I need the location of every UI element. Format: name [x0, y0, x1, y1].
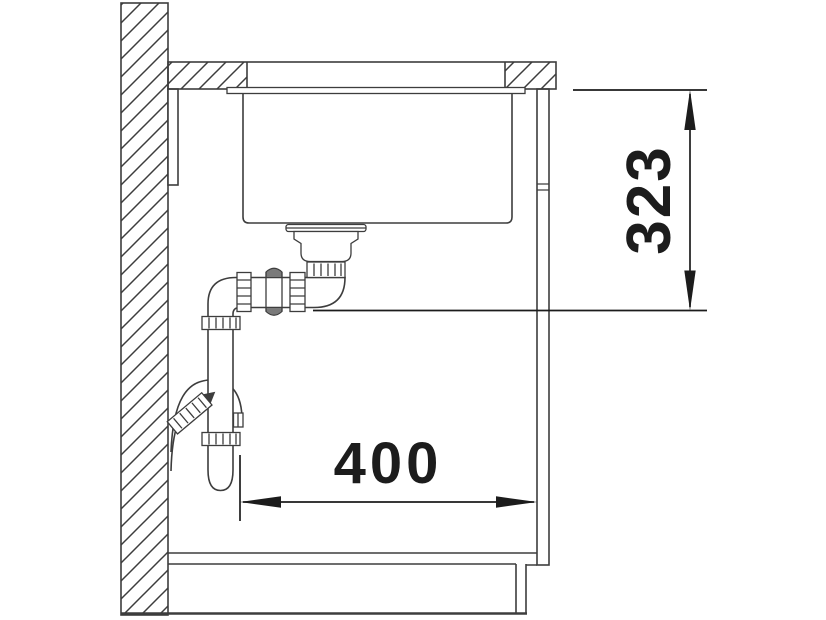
sink-cabinet-section-drawing: 323 400	[0, 0, 826, 620]
pipe-clip	[234, 413, 244, 427]
vertical-pipe-nut-lower	[202, 433, 240, 446]
dim-h-arrow-left	[240, 496, 281, 507]
cabinet-back-rail	[168, 89, 178, 185]
strainer-bowl	[294, 232, 358, 262]
wall-section-hatched	[121, 3, 168, 615]
countertop-hatch-left	[168, 62, 247, 89]
pipe-nut-left	[237, 273, 251, 312]
dimension-vertical-value: 323	[615, 145, 684, 254]
dim-v-arrow-down	[684, 271, 695, 311]
strainer-assembly	[286, 225, 366, 278]
cabinet-side-panel	[537, 89, 549, 565]
dimension-horizontal: 400	[240, 431, 537, 521]
strainer-threaded-ring	[307, 262, 345, 278]
countertop-hatch-right	[505, 62, 556, 89]
drain-pipe-run	[202, 268, 345, 490]
dimension-horizontal-value: 400	[334, 431, 443, 496]
sink-basin	[243, 94, 512, 224]
vertical-pipe-nut-upper	[202, 317, 240, 330]
pipe-nut-right	[290, 273, 305, 312]
countertop-cutout-edges	[247, 62, 505, 89]
countertop	[168, 62, 556, 89]
technical-drawing-canvas: 323 400	[0, 0, 826, 620]
plinth-board	[516, 564, 537, 613]
dim-h-arrow-right	[496, 496, 537, 507]
sink	[227, 88, 525, 224]
dim-v-arrow-up	[684, 90, 695, 130]
sink-rim-plate	[227, 88, 525, 94]
